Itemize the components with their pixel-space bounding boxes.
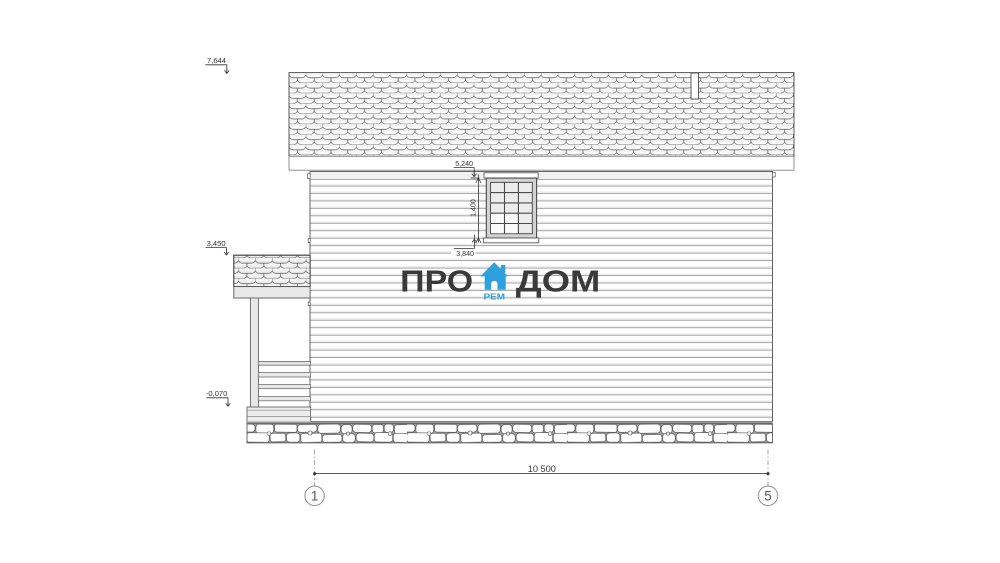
svg-text:1: 1: [311, 489, 319, 504]
svg-text:1,400: 1,400: [470, 199, 478, 217]
svg-text:ПРО: ПРО: [400, 264, 473, 299]
svg-text:5,240: 5,240: [455, 160, 473, 168]
svg-text:3,450: 3,450: [207, 239, 226, 248]
svg-text:-0,070: -0,070: [206, 389, 228, 398]
svg-text:5: 5: [764, 489, 772, 504]
svg-text:3,840: 3,840: [456, 250, 474, 258]
svg-text:РЕМ: РЕМ: [484, 292, 506, 301]
svg-text:ДОМ: ДОМ: [516, 264, 601, 299]
svg-text:7,644: 7,644: [207, 56, 226, 65]
svg-text:10 500: 10 500: [528, 464, 556, 474]
